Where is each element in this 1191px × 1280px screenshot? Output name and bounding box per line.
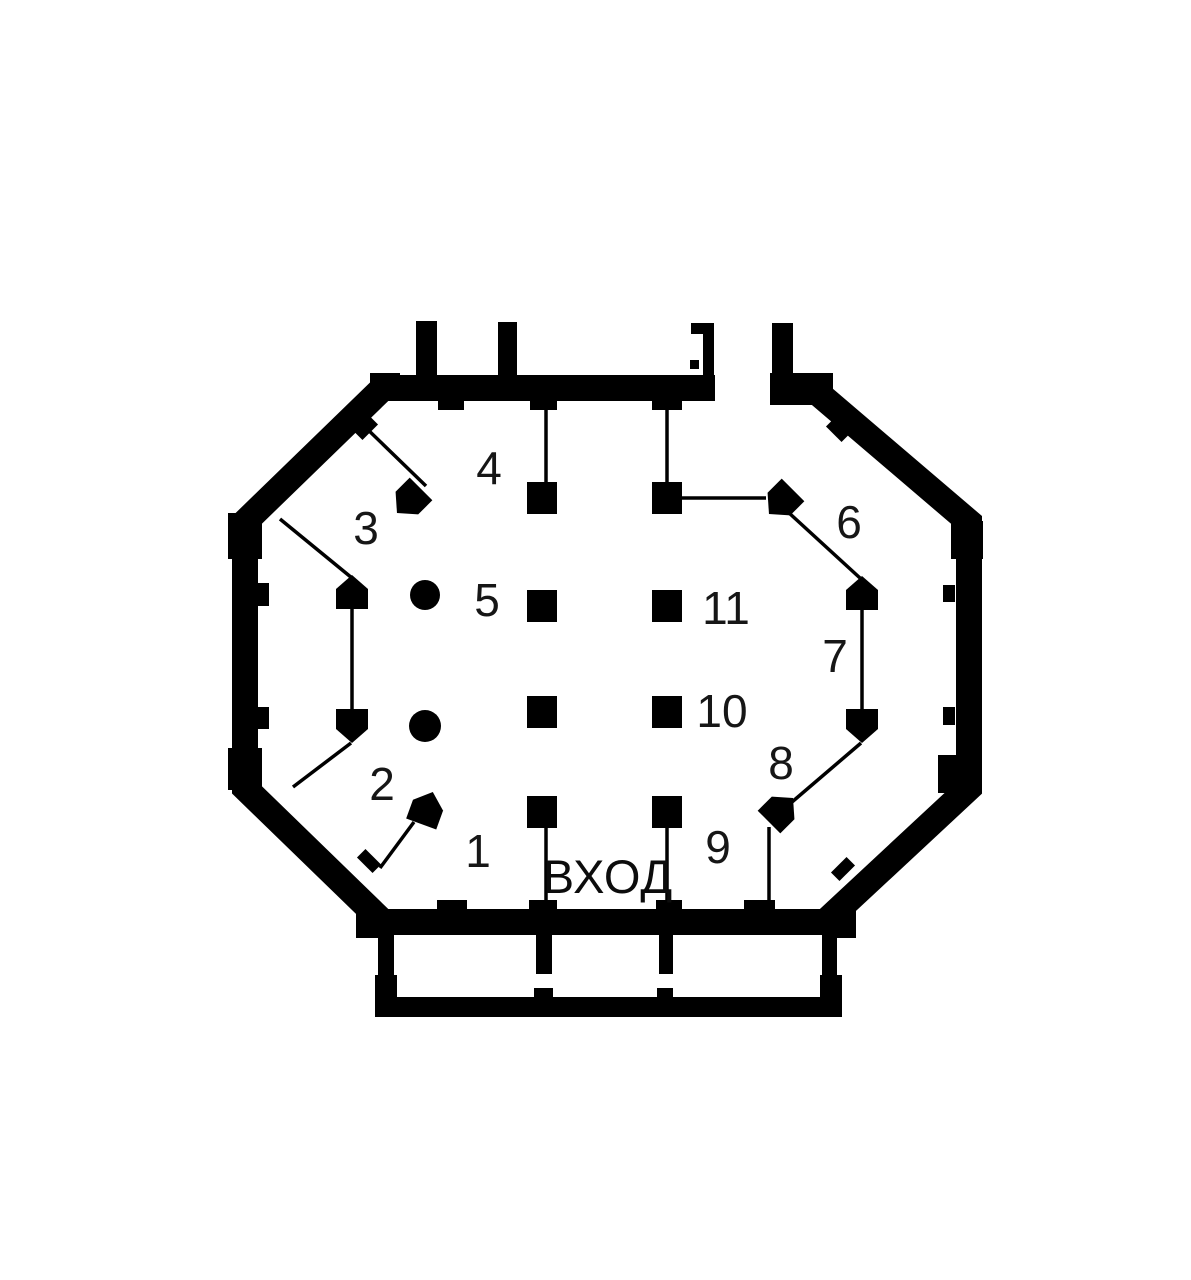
wall-pier [356, 908, 382, 938]
inner-wall-bump [831, 857, 855, 881]
inner-wall-bump [534, 988, 553, 997]
wall-pier [770, 373, 833, 405]
position-label-2: 2 [369, 758, 395, 810]
wall-marker [846, 709, 878, 743]
square-pillars [527, 482, 682, 828]
inner-wall-bump [657, 988, 673, 997]
wall-pier [228, 513, 262, 559]
inner-wall-bump [357, 849, 381, 873]
wall-marker [846, 576, 878, 610]
position-label-4: 4 [476, 442, 502, 494]
pillar-square [652, 590, 682, 622]
wall-pier [228, 748, 262, 790]
leader-line [362, 424, 426, 486]
inner-wall-bump [943, 585, 955, 602]
pillar-square [527, 796, 557, 828]
porch-corner-pier [820, 975, 842, 1017]
pilaster-hook [690, 360, 699, 369]
leader-lines [280, 405, 862, 908]
pilaster-hook [691, 323, 713, 334]
wall-pier [830, 908, 856, 938]
wall-markers [336, 478, 878, 834]
inner-wall-bump [530, 399, 557, 410]
wall-marker [336, 575, 368, 609]
column-circle [409, 710, 441, 742]
floor-plan-svg: 1 2 3 4 5 6 7 8 9 10 11 ВХОД [0, 0, 1191, 1280]
porch-bottom-wall [378, 997, 837, 1017]
wall-pier [951, 521, 983, 559]
position-label-6: 6 [836, 496, 862, 548]
round-columns [409, 580, 441, 742]
window-notch [911, 511, 934, 534]
wall-pier [938, 755, 982, 793]
wall-marker [758, 787, 805, 834]
porch-corner-pier [375, 975, 397, 1017]
pilaster [498, 322, 517, 379]
position-label-8: 8 [768, 737, 794, 789]
leader-line [293, 743, 351, 787]
leader-line [792, 743, 861, 802]
pilaster [772, 323, 793, 377]
top-pilasters [416, 321, 793, 379]
porch-divider [536, 920, 552, 974]
position-label-7: 7 [822, 630, 848, 682]
window-notch [275, 516, 298, 539]
window-notch [912, 771, 935, 794]
inner-wall-bump [438, 399, 464, 410]
inner-wall-bumps [257, 399, 955, 911]
inner-wall-bump [943, 707, 955, 725]
position-label-5: 5 [474, 574, 500, 626]
pillar-square [652, 796, 682, 828]
pillar-square [527, 696, 557, 728]
leader-line [280, 519, 352, 578]
position-label-3: 3 [353, 502, 379, 554]
column-circle [410, 580, 440, 610]
entrance-label: ВХОД [543, 850, 673, 903]
inner-wall-bump [437, 900, 467, 911]
position-label-11: 11 [702, 582, 750, 634]
inner-wall-bump [257, 707, 269, 729]
wall-pier [370, 373, 400, 401]
position-label-1: 1 [465, 825, 491, 877]
pillar-square [652, 696, 682, 728]
inner-wall-bump [257, 583, 269, 606]
pillar-square [527, 590, 557, 622]
pillar-square [527, 482, 557, 514]
wall-marker [336, 709, 368, 743]
floor-plan-screenshot: 1 2 3 4 5 6 7 8 9 10 11 ВХОД [0, 0, 1191, 1280]
leader-line [380, 822, 414, 868]
position-label-9: 9 [705, 821, 731, 873]
pillar-square [652, 482, 682, 514]
position-label-10: 10 [696, 685, 747, 737]
porch-divider [659, 920, 673, 974]
pilaster [416, 321, 437, 379]
